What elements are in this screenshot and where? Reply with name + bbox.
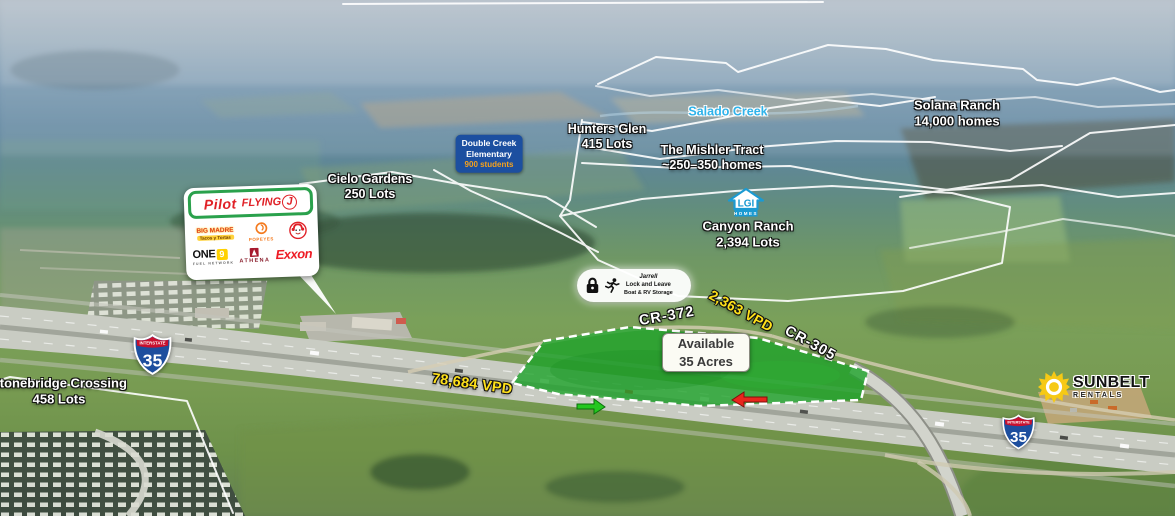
school-students: 900 students bbox=[462, 160, 517, 170]
school-name-line2: Elementary bbox=[462, 149, 517, 160]
flying-j-logo: FLYING J bbox=[241, 194, 297, 211]
pilot-logo: Pilot bbox=[204, 196, 237, 213]
shield-number: 35 bbox=[1010, 429, 1027, 446]
school-name-line1: Double Creek bbox=[462, 138, 517, 149]
exxon-logo: Exxon bbox=[275, 246, 312, 262]
sunbelt-sub: RENTALS bbox=[1073, 392, 1149, 399]
storage-line2: Lock and Leave bbox=[624, 282, 673, 290]
sunburst-icon bbox=[1038, 371, 1070, 403]
padlock-icon bbox=[585, 277, 600, 294]
tenant-row-1: BIG MADRE Tacos y Tortas POPEYES bbox=[189, 220, 315, 244]
one9-sub: FUEL NETWORK bbox=[193, 261, 234, 266]
shield-top-text: INTERSTATE bbox=[1007, 420, 1030, 424]
wendys-girl-logo bbox=[288, 221, 307, 240]
label-canyon-ranch: Canyon Ranch 2,394 Lots bbox=[702, 218, 793, 249]
area-name: The Mishler Tract bbox=[661, 143, 764, 158]
area-name: Stonebridge Crossing bbox=[0, 375, 127, 391]
popeyes-rooster-icon bbox=[253, 221, 269, 237]
storage-line3: Boat & RV Storage bbox=[624, 290, 673, 297]
label-cielo-gardens: Cielo Gardens 250 Lots bbox=[328, 172, 413, 202]
area-name: Cielo Gardens bbox=[328, 172, 413, 187]
area-detail: 250 Lots bbox=[328, 187, 413, 202]
area-detail: 415 Lots bbox=[568, 137, 647, 152]
pilot-flying-j-sign: Pilot FLYING J BIG MADRE Tacos y Tortas … bbox=[183, 184, 319, 281]
shield-top-text: INTERSTATE bbox=[139, 340, 165, 345]
pilot-flying-j-header: Pilot FLYING J bbox=[188, 187, 314, 219]
house-outline-icon: LGI HOMES bbox=[727, 187, 765, 218]
label-mishler-tract: The Mishler Tract ~250–350 homes bbox=[661, 143, 764, 173]
area-detail: 458 Lots bbox=[0, 391, 127, 407]
aerial-photo-background bbox=[0, 0, 1175, 516]
label-salado-creek: Salado Creek bbox=[688, 105, 767, 120]
rv-storage-callout: Jarrell Lock and Leave Boat & RV Storage bbox=[577, 269, 691, 302]
available-acreage-box: Available 35 Acres bbox=[662, 333, 750, 372]
sunbelt-text: SUNBELT RENTALS bbox=[1073, 375, 1149, 399]
athena-logo: ATHENA bbox=[239, 247, 270, 264]
lgi-word: HOMES bbox=[734, 211, 758, 216]
flying-word: FLYING bbox=[241, 196, 281, 209]
one9-word: ONE bbox=[192, 248, 215, 261]
i35-shield-right: INTERSTATE 35 bbox=[1002, 413, 1035, 451]
big-madre-sub: Tacos y Tortas bbox=[197, 234, 234, 240]
available-line2: 35 Acres bbox=[663, 353, 749, 371]
area-detail: 14,000 homes bbox=[914, 113, 1000, 129]
storage-text: Jarrell Lock and Leave Boat & RV Storage bbox=[624, 274, 673, 297]
area-name: Canyon Ranch bbox=[702, 218, 793, 234]
area-detail: 2,394 Lots bbox=[702, 234, 793, 250]
sunbelt-name: SUNBELT bbox=[1073, 375, 1149, 391]
double-creek-elementary-badge: Double Creek Elementary 900 students bbox=[456, 135, 523, 173]
running-person-icon bbox=[604, 277, 620, 294]
tenant-row-2: ONE 9 FUEL NETWORK ATHENA Exxon bbox=[190, 245, 316, 266]
aerial-site-map: Salado Creek Solana Ranch 14,000 homes H… bbox=[0, 0, 1175, 516]
area-detail: ~250–350 homes bbox=[661, 158, 764, 173]
lgi-abbr: LGI bbox=[738, 199, 755, 210]
big-madre-name: BIG MADRE bbox=[196, 226, 233, 234]
popeyes-logo: POPEYES bbox=[248, 221, 274, 242]
shield-number: 35 bbox=[143, 350, 163, 370]
label-stonebridge-crossing: Stonebridge Crossing 458 Lots bbox=[0, 375, 127, 406]
label-solana-ranch: Solana Ranch 14,000 homes bbox=[914, 97, 1000, 128]
one9-logo: ONE 9 FUEL NETWORK bbox=[192, 248, 234, 266]
storage-line1: Jarrell bbox=[624, 274, 673, 282]
athena-name: ATHENA bbox=[239, 257, 270, 264]
sunbelt-rentals-sign: SUNBELT RENTALS bbox=[1038, 371, 1149, 403]
big-madre-logo: BIG MADRE Tacos y Tortas bbox=[196, 226, 234, 240]
area-name: Hunters Glen bbox=[568, 122, 647, 137]
available-line1: Available bbox=[663, 335, 749, 353]
popeyes-name: POPEYES bbox=[249, 236, 274, 242]
area-name: Solana Ranch bbox=[914, 97, 1000, 113]
i35-shield-left: INTERSTATE 35 bbox=[133, 334, 172, 375]
flying-j-letter: J bbox=[282, 194, 298, 210]
athena-emblem-icon bbox=[250, 247, 259, 256]
one9-number: 9 bbox=[216, 248, 227, 259]
label-hunters-glen: Hunters Glen 415 Lots bbox=[568, 122, 647, 152]
